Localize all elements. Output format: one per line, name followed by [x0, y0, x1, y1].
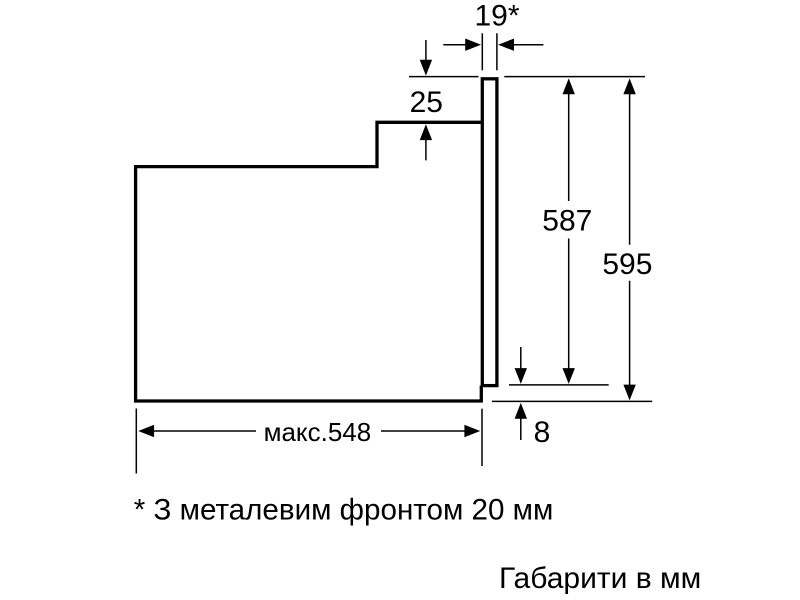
svg-text:595: 595 [602, 248, 652, 281]
svg-text:Габарити в мм: Габарити в мм [499, 562, 701, 595]
svg-text:19*: 19* [474, 0, 519, 33]
svg-text:25: 25 [410, 86, 443, 119]
svg-text:8: 8 [534, 416, 551, 449]
svg-text:* З металевим фронтом 20 мм: * З металевим фронтом 20 мм [134, 494, 554, 527]
svg-text:макс.548: макс.548 [264, 417, 372, 447]
svg-text:587: 587 [542, 205, 592, 238]
